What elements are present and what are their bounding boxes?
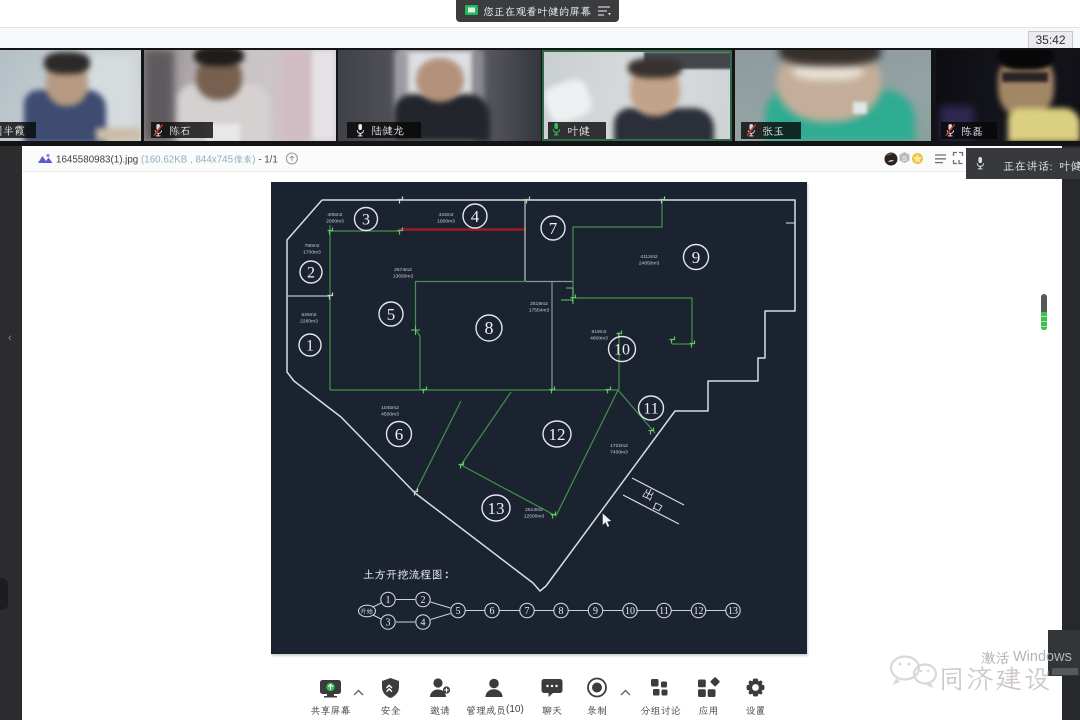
svg-text:13650m3: 13650m3 (393, 273, 414, 279)
svg-text:6: 6 (395, 425, 404, 444)
svg-text:11: 11 (659, 606, 669, 617)
svg-text:13: 13 (728, 606, 738, 617)
svg-text:2260m3: 2260m3 (300, 318, 318, 324)
svg-text:9: 9 (692, 248, 701, 267)
svg-text:6: 6 (490, 606, 495, 617)
svg-text:7: 7 (525, 606, 530, 617)
svg-text:4112m2: 4112m2 (640, 254, 658, 260)
svg-text:1: 1 (386, 595, 391, 606)
svg-text:17554m3: 17554m3 (529, 307, 550, 313)
svg-text:12: 12 (694, 606, 704, 617)
svg-text:4800m3: 4800m3 (590, 335, 608, 341)
svg-text:2519m2: 2519m2 (530, 301, 548, 307)
svg-text:4500m3: 4500m3 (381, 411, 399, 417)
svg-text:8: 8 (559, 606, 564, 617)
svg-text:24850m3: 24850m3 (639, 260, 660, 266)
svg-text:5: 5 (456, 606, 461, 617)
svg-text:1645580983(1).jpg (160.62KB ,: 1645580983(1).jpg (160.62KB , 844x745) -… (56, 154, 278, 165)
svg-text:13: 13 (488, 499, 505, 518)
svg-text:9: 9 (593, 606, 598, 617)
svg-text:919m2: 919m2 (592, 329, 607, 335)
svg-text:1: 1 (306, 337, 314, 354)
svg-text:12500m3: 12500m3 (524, 513, 545, 519)
svg-text:405m2: 405m2 (328, 212, 343, 218)
svg-text:5: 5 (387, 305, 396, 324)
svg-text:443m2: 443m2 (439, 212, 454, 218)
svg-text:1722m2: 1722m2 (610, 443, 628, 449)
svg-text:12: 12 (549, 425, 566, 444)
svg-text:2: 2 (421, 595, 426, 606)
svg-text:4: 4 (471, 207, 480, 226)
svg-text:2000m3: 2000m3 (326, 218, 344, 224)
svg-text:10: 10 (625, 606, 635, 617)
svg-text:3: 3 (362, 211, 370, 228)
svg-text:790m2: 790m2 (305, 243, 320, 249)
svg-text:2: 2 (307, 264, 315, 281)
svg-text:11: 11 (643, 400, 658, 417)
svg-text:2613m2: 2613m2 (525, 507, 543, 513)
svg-text:S: S (902, 156, 907, 163)
svg-text:7400m3: 7400m3 (610, 449, 628, 455)
svg-text:4: 4 (421, 617, 426, 628)
svg-text:7: 7 (549, 219, 558, 238)
svg-text:8: 8 (485, 318, 494, 338)
svg-text:3: 3 (386, 617, 391, 628)
svg-text:2674m2: 2674m2 (394, 267, 412, 273)
svg-text:1700m3: 1700m3 (303, 249, 321, 255)
svg-text:1900m3: 1900m3 (437, 218, 455, 224)
svg-text:10: 10 (614, 341, 630, 358)
svg-text:526m2: 526m2 (302, 312, 317, 318)
svg-text:1045m2: 1045m2 (381, 405, 399, 411)
svg-text::: : (445, 567, 449, 581)
